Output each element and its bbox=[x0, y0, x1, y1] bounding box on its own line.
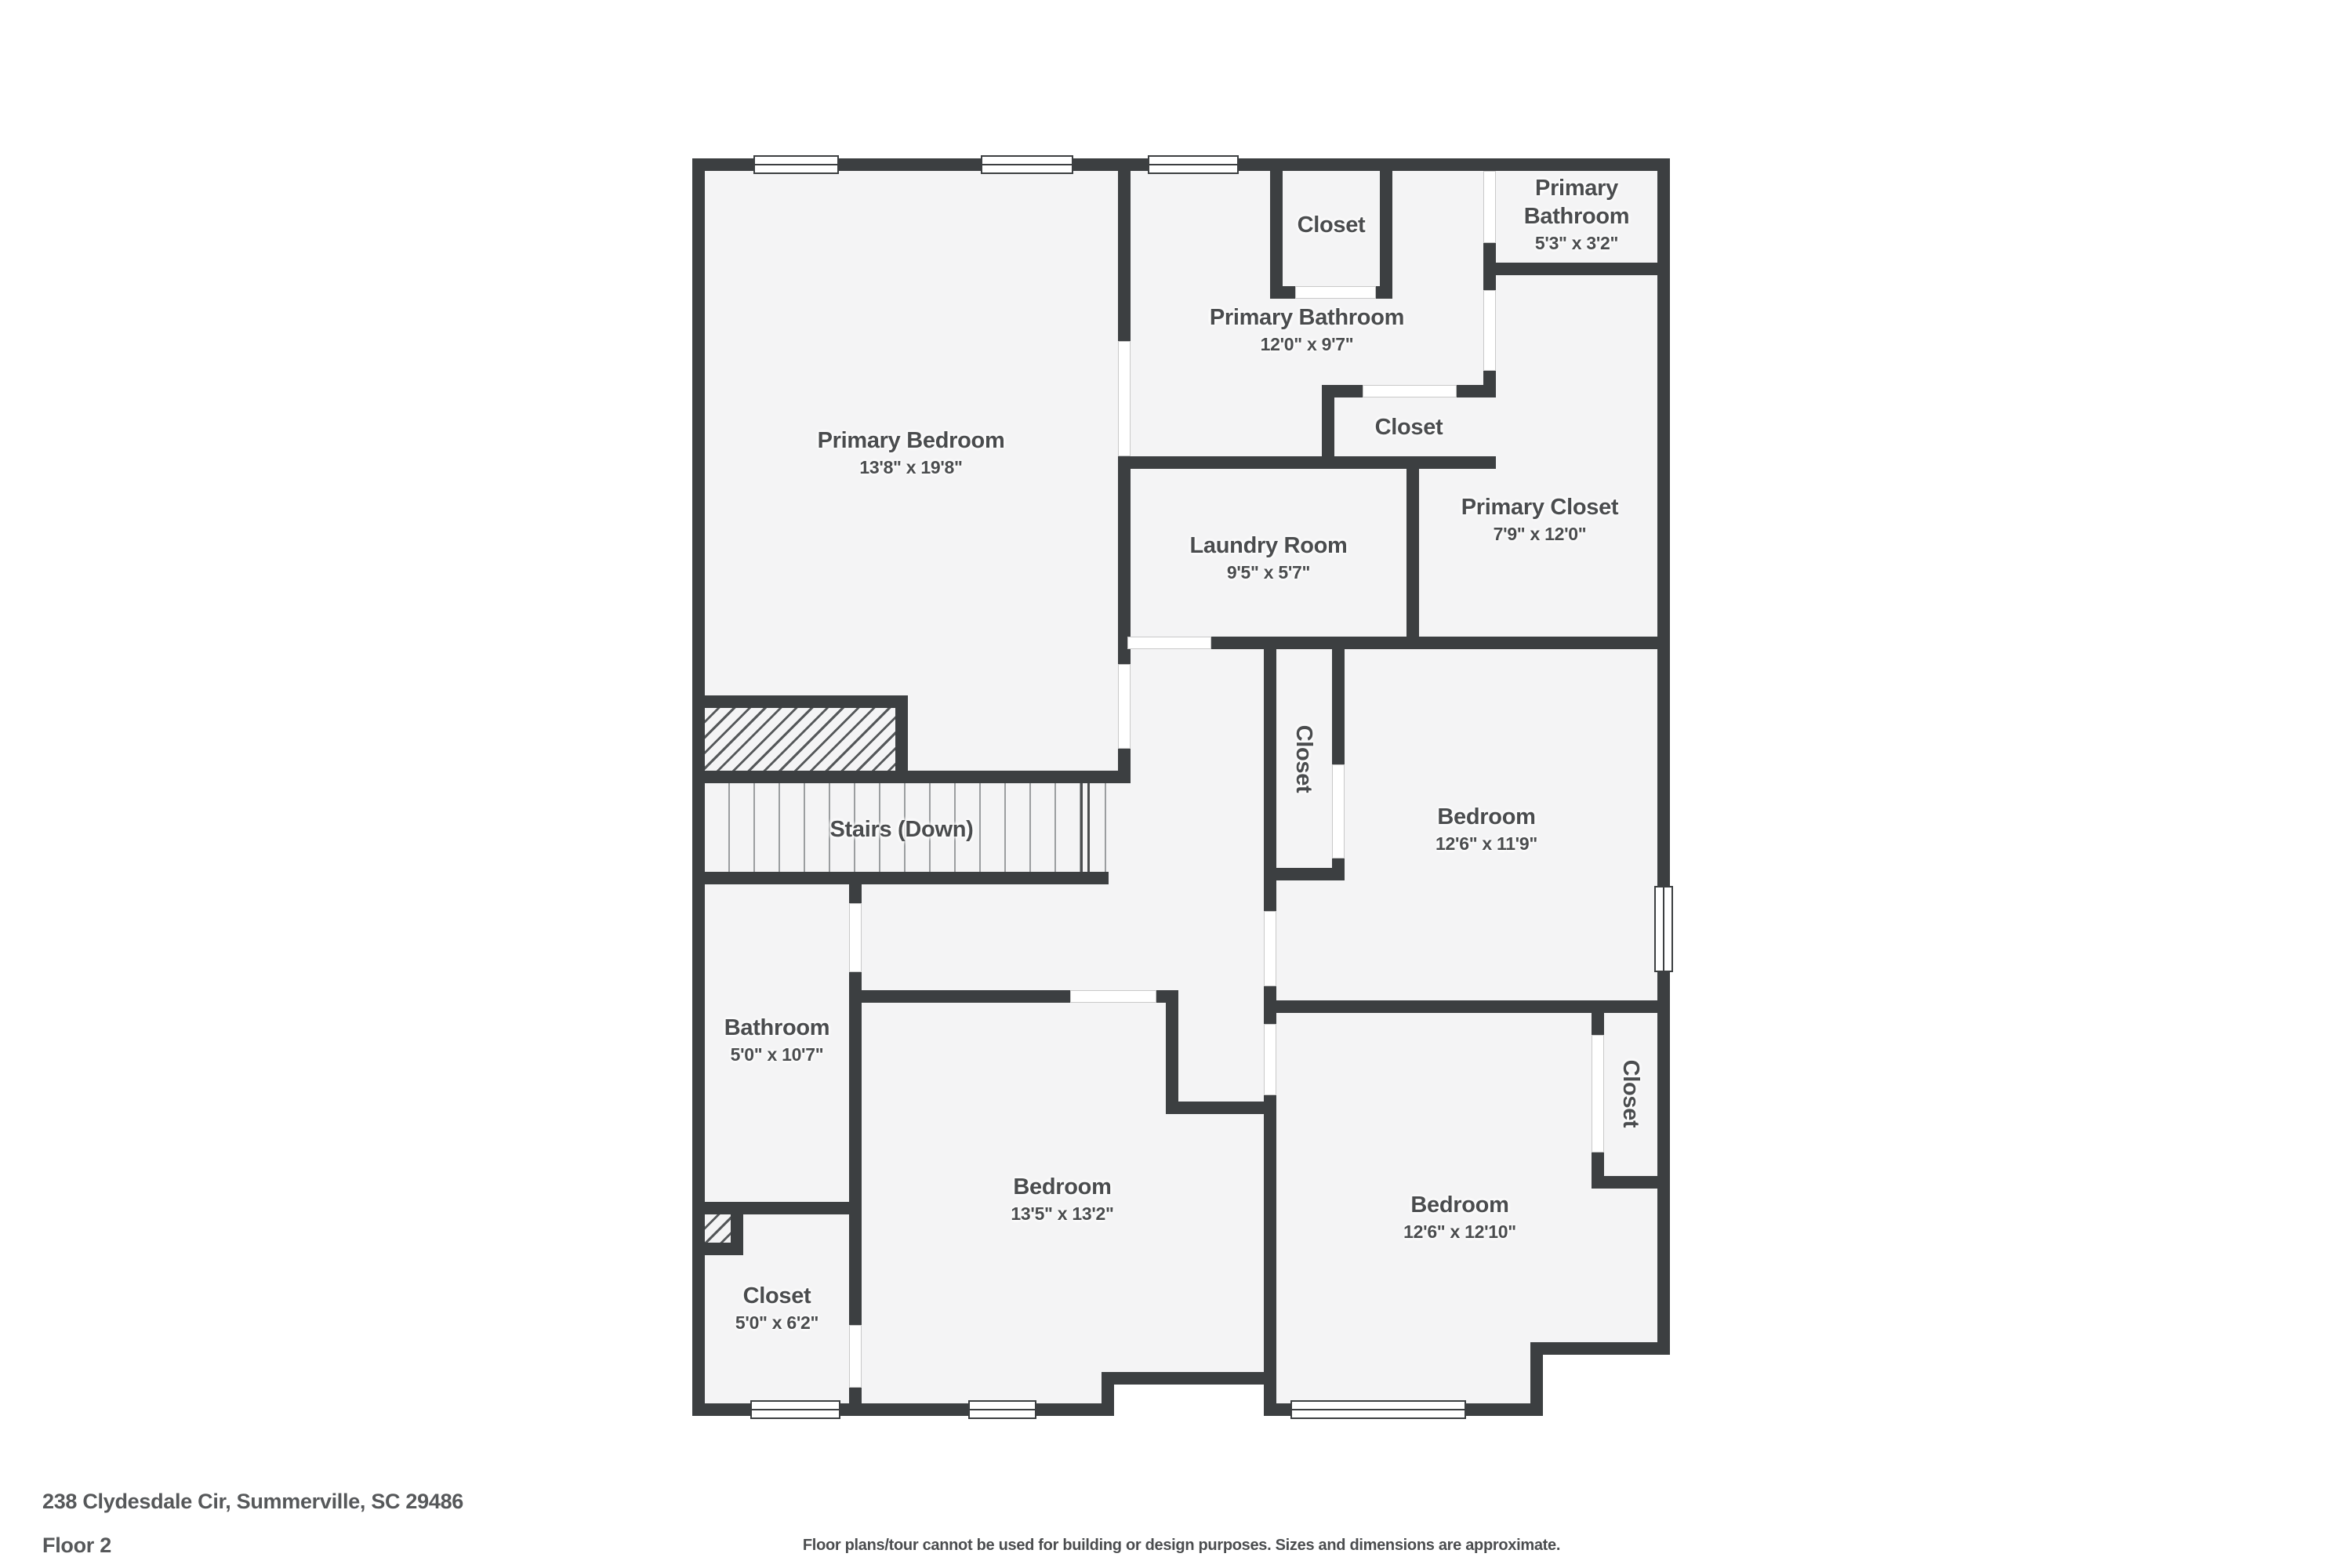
wall bbox=[692, 1202, 862, 1214]
door-opening bbox=[1332, 764, 1345, 858]
wall bbox=[1592, 1176, 1670, 1189]
door-opening bbox=[1127, 637, 1211, 649]
wall bbox=[1102, 1372, 1114, 1416]
exterior-notch bbox=[1543, 1355, 1670, 1416]
room-name: Primary Bathroom bbox=[1498, 174, 1655, 230]
hatch-area bbox=[705, 708, 895, 771]
door-opening bbox=[1592, 1035, 1604, 1152]
wall bbox=[1118, 456, 1496, 469]
wall bbox=[1406, 469, 1419, 637]
room-name: Primary Closet bbox=[1461, 493, 1619, 521]
window bbox=[1290, 1400, 1466, 1419]
door-opening bbox=[1295, 286, 1376, 299]
room-label-closet-top: Closet bbox=[1298, 211, 1366, 239]
door-opening bbox=[1118, 341, 1131, 456]
window bbox=[968, 1400, 1036, 1419]
room-name: Closet bbox=[1298, 211, 1366, 239]
room-name: Closet bbox=[1375, 413, 1443, 441]
door-opening bbox=[1363, 385, 1457, 397]
door-opening bbox=[1483, 290, 1496, 371]
window bbox=[1148, 155, 1239, 174]
room-label-primary-bathroom: Primary Bathroom 12'0" x 9'7" bbox=[1210, 303, 1404, 357]
window bbox=[750, 1400, 840, 1419]
wall bbox=[1270, 171, 1283, 299]
room-label-bedroom-ne: Bedroom 12'6" x 11'9" bbox=[1436, 803, 1537, 856]
room-name: Closet bbox=[735, 1282, 818, 1310]
door-opening bbox=[1264, 911, 1276, 986]
wall bbox=[692, 158, 705, 1416]
window bbox=[1654, 886, 1673, 972]
room-label-closet-sw: Closet 5'0" x 6'2" bbox=[735, 1282, 818, 1335]
wall bbox=[1166, 1102, 1276, 1114]
door-opening bbox=[1118, 664, 1131, 749]
room-dims: 12'6" x 12'10" bbox=[1403, 1219, 1516, 1244]
room-label-bathroom: Bathroom 5'0" x 10'7" bbox=[724, 1014, 830, 1067]
room-label-primary-bedroom: Primary Bedroom 13'8" x 19'8" bbox=[818, 426, 1005, 480]
room-label-stairs: Stairs (Down) bbox=[829, 815, 973, 844]
door-opening bbox=[1483, 171, 1496, 243]
floor-number-text: Floor 2 bbox=[42, 1534, 111, 1558]
wall bbox=[1264, 868, 1345, 880]
room-dims: 9'5" x 5'7" bbox=[1189, 560, 1347, 585]
stairs-edge-line bbox=[1080, 783, 1090, 872]
door-opening bbox=[849, 903, 862, 972]
room-label-laundry: Laundry Room 9'5" x 5'7" bbox=[1189, 532, 1347, 585]
room-name: Closet bbox=[1290, 725, 1318, 793]
door-opening bbox=[1264, 1024, 1276, 1095]
room-label-closet-hall: Closet bbox=[1290, 725, 1318, 793]
room-dims: 7'9" x 12'0" bbox=[1461, 521, 1619, 546]
room-dims: 5'3" x 3'2" bbox=[1498, 230, 1655, 256]
window bbox=[753, 155, 839, 174]
door-opening bbox=[1070, 990, 1156, 1003]
room-dims: 5'0" x 6'2" bbox=[735, 1310, 818, 1335]
room-name: Closet bbox=[1617, 1060, 1645, 1128]
room-label-closet-mid: Closet bbox=[1375, 413, 1443, 441]
wall bbox=[1530, 1342, 1670, 1355]
room-name: Bedroom bbox=[1403, 1191, 1516, 1219]
floor-plan: Primary Bedroom 13'8" x 19'8" Closet Pri… bbox=[0, 0, 2352, 1568]
room-name: Bathroom bbox=[724, 1014, 830, 1042]
wall bbox=[1483, 263, 1670, 275]
room-name: Bedroom bbox=[1436, 803, 1537, 831]
address-text: 238 Clydesdale Cir, Summerville, SC 2948… bbox=[42, 1490, 463, 1514]
room-dims: 12'6" x 11'9" bbox=[1436, 831, 1537, 856]
room-label-bedroom-se: Bedroom 12'6" x 12'10" bbox=[1403, 1191, 1516, 1244]
room-name: Stairs (Down) bbox=[829, 815, 973, 844]
wall bbox=[1380, 171, 1392, 299]
wall bbox=[1166, 990, 1178, 1114]
room-name: Bedroom bbox=[1011, 1173, 1113, 1201]
door-opening bbox=[849, 1325, 862, 1388]
room-label-closet-se: Closet bbox=[1617, 1060, 1645, 1128]
room-dims: 12'0" x 9'7" bbox=[1210, 332, 1404, 357]
room-name: Primary Bathroom bbox=[1210, 303, 1404, 332]
wall bbox=[692, 771, 1131, 783]
room-dims: 13'8" x 19'8" bbox=[818, 455, 1005, 480]
disclaimer-text: Floor plans/tour cannot be used for buil… bbox=[803, 1537, 1560, 1555]
room-name: Laundry Room bbox=[1189, 532, 1347, 560]
room-name: Primary Bedroom bbox=[818, 426, 1005, 455]
room-label-bedroom-sw: Bedroom 13'5" x 13'2" bbox=[1011, 1173, 1113, 1226]
exterior-notch bbox=[1114, 1385, 1264, 1416]
wall bbox=[692, 872, 1109, 884]
hatch-area bbox=[705, 1214, 731, 1243]
wall bbox=[1102, 1372, 1276, 1385]
room-dims: 13'5" x 13'2" bbox=[1011, 1201, 1113, 1226]
room-label-primary-bathroom-small: Primary Bathroom 5'3" x 3'2" bbox=[1498, 174, 1655, 256]
wall bbox=[692, 1243, 743, 1255]
wall bbox=[1264, 1000, 1670, 1013]
wall bbox=[692, 695, 908, 708]
wall bbox=[1530, 1342, 1543, 1416]
window bbox=[981, 155, 1073, 174]
room-label-primary-closet: Primary Closet 7'9" x 12'0" bbox=[1461, 493, 1619, 546]
room-dims: 5'0" x 10'7" bbox=[724, 1042, 830, 1067]
